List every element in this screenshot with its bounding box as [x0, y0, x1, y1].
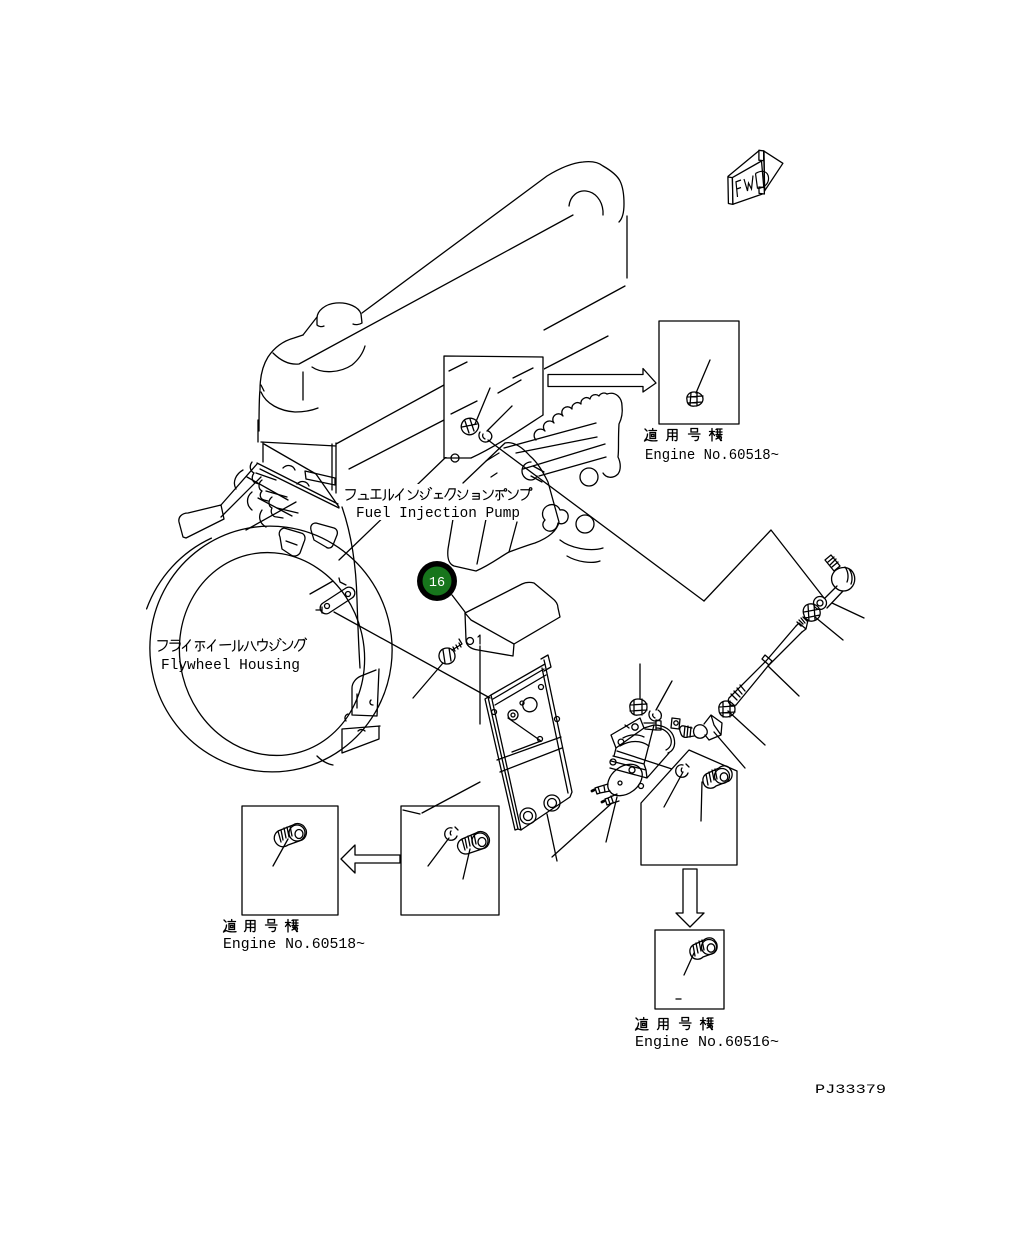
svg-text:Flywheel Housing: Flywheel Housing — [161, 657, 300, 674]
svg-text:Engine No.60516~: Engine No.60516~ — [635, 1034, 779, 1051]
svg-text:PJ33379: PJ33379 — [815, 1082, 886, 1097]
svg-text:16: 16 — [429, 576, 445, 591]
svg-text:Fuel Injection Pump: Fuel Injection Pump — [356, 505, 520, 522]
svg-text:Engine No.60518~: Engine No.60518~ — [223, 936, 365, 953]
svg-text:Engine No.60518~: Engine No.60518~ — [645, 447, 779, 464]
